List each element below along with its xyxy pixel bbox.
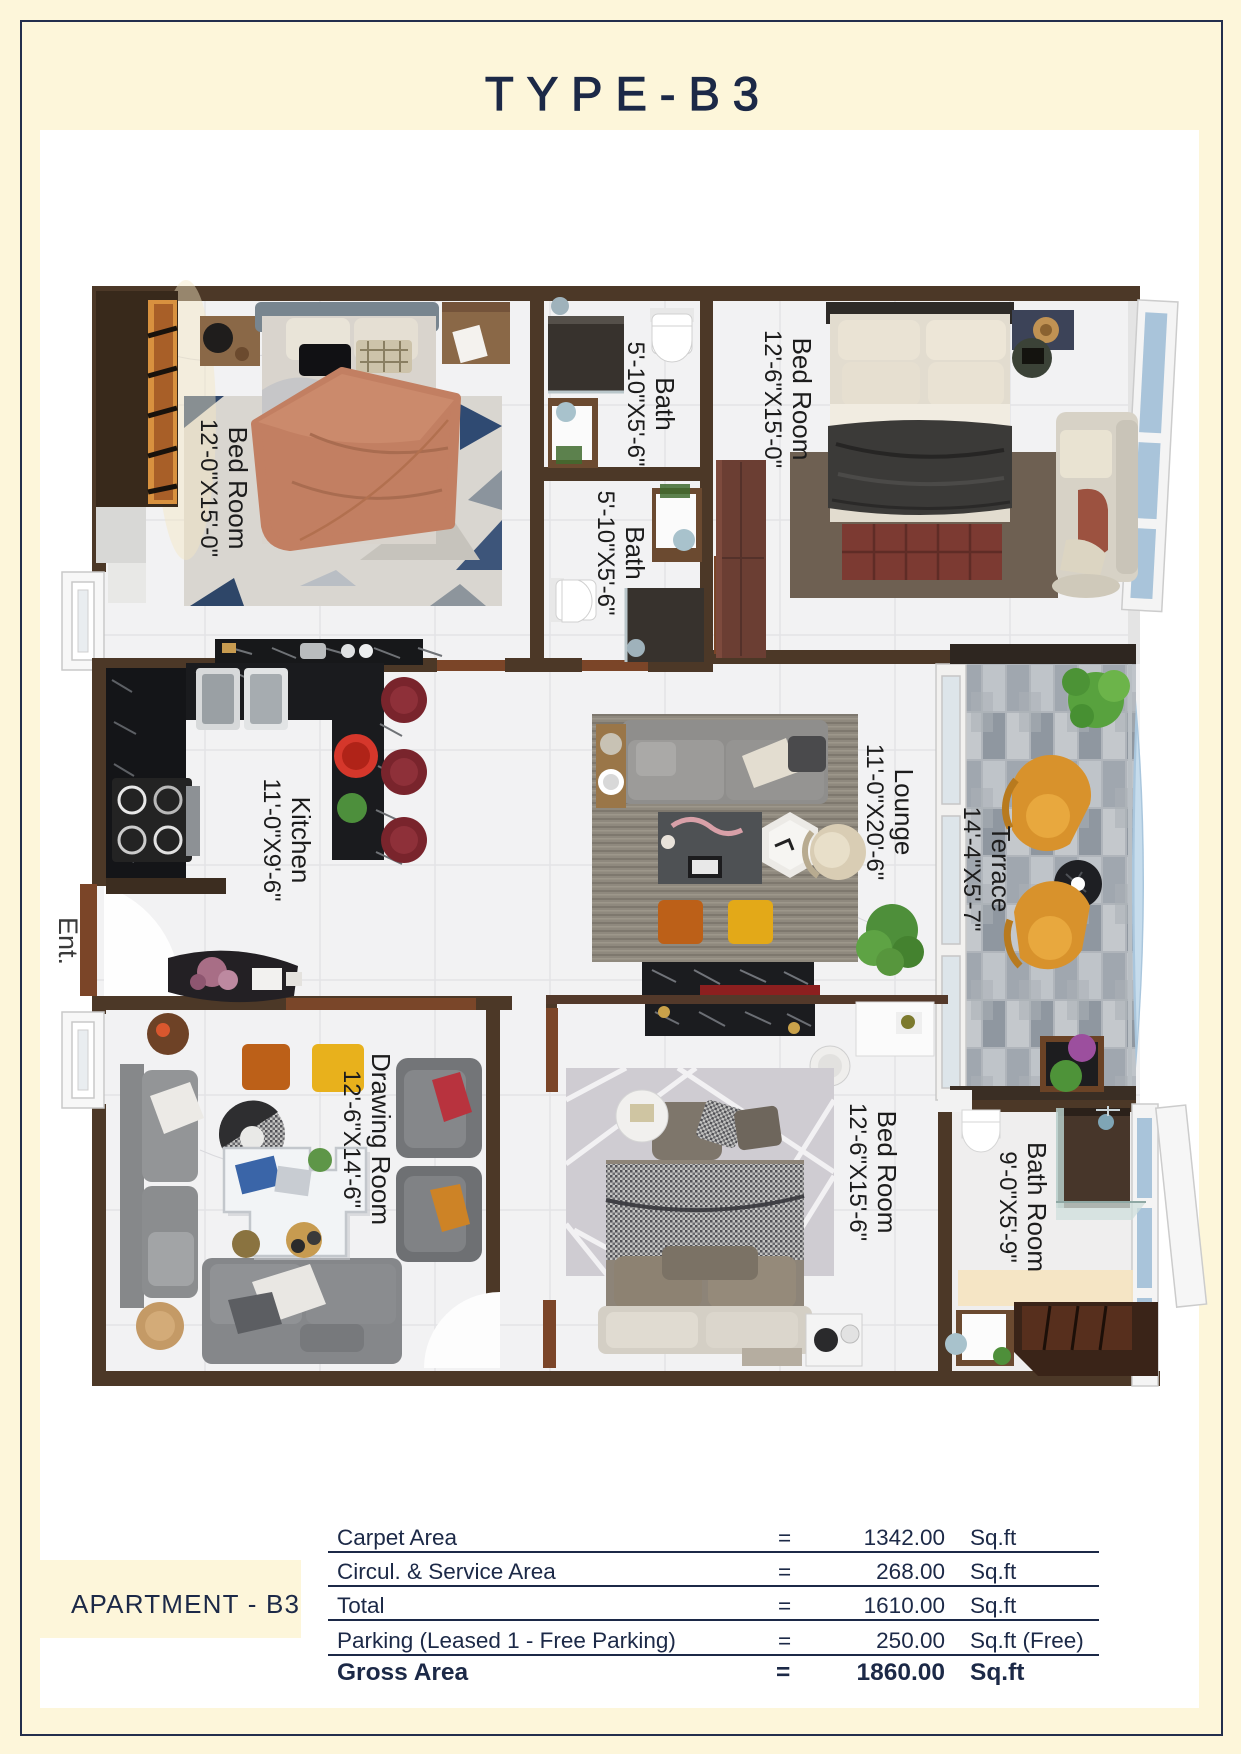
svg-text:12'-6"X15'-0": 12'-6"X15'-0" [759,330,786,468]
svg-text:Terrace: Terrace [986,826,1016,913]
svg-text:Ent.: Ent. [53,917,83,965]
svg-text:Kitchen: Kitchen [286,797,316,884]
svg-text:11'-0"X20'-6": 11'-0"X20'-6" [861,744,888,881]
svg-text:Bed Room: Bed Room [223,427,253,550]
svg-text:Bath: Bath [650,377,680,431]
svg-text:Lounge: Lounge [889,769,919,856]
svg-text:Bed Room: Bed Room [787,338,817,461]
svg-text:12'-0"X15'-0": 12'-0"X15'-0" [195,419,222,557]
svg-text:5'-10"X5'-6": 5'-10"X5'-6" [622,342,649,467]
svg-text:11'-0"X9'-6": 11'-0"X9'-6" [258,778,285,901]
svg-text:5'-10"X5'-6": 5'-10"X5'-6" [592,491,619,616]
svg-text:Bath Room: Bath Room [1022,1142,1052,1272]
svg-text:14'-4"X5'-7": 14'-4"X5'-7" [958,807,985,932]
svg-text:Bed Room: Bed Room [872,1111,902,1234]
svg-text:Drawing Room: Drawing Room [366,1053,396,1225]
svg-text:Bath: Bath [620,526,650,580]
svg-text:12'-6"X14'-6": 12'-6"X14'-6" [338,1070,365,1208]
svg-text:9'-0"X5'-9": 9'-0"X5'-9" [994,1151,1021,1263]
svg-text:12'-6"X15'-6": 12'-6"X15'-6" [844,1103,871,1241]
